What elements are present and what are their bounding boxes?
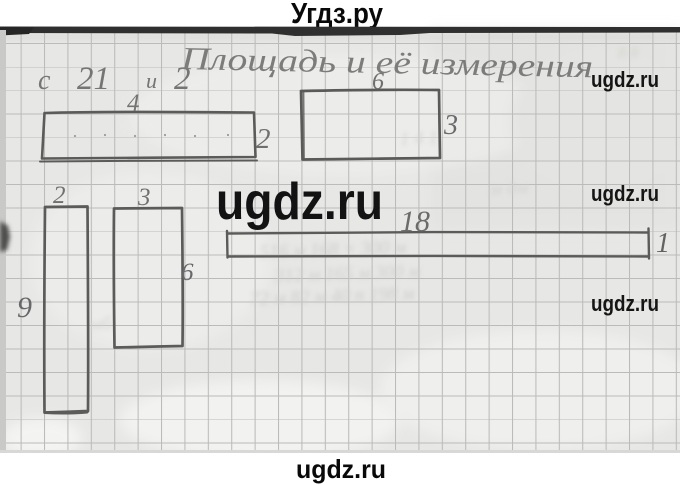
svg-text:1: 1 bbox=[656, 228, 670, 259]
svg-text:3: 3 bbox=[443, 110, 458, 141]
svg-text:6: 6 bbox=[181, 259, 194, 286]
svg-text:6: 6 bbox=[372, 69, 384, 95]
svg-text:8 8: 8 8 bbox=[618, 45, 638, 62]
svg-text:м дм: м дм bbox=[488, 177, 529, 200]
svg-text:2: 2 bbox=[256, 123, 271, 155]
svg-text:2: 2 bbox=[53, 182, 66, 209]
svg-text:ugdz.ru: ugdz.ru bbox=[591, 67, 659, 92]
svg-text:с: с bbox=[38, 65, 51, 96]
svg-text:9: 9 bbox=[17, 291, 32, 324]
svg-text:3: 3 bbox=[137, 184, 151, 211]
svg-text:Угдз.ру: Угдз.ру bbox=[291, 0, 383, 30]
svg-text:ugdz.ru: ugdz.ru bbox=[216, 173, 383, 231]
svg-text:4: 4 bbox=[127, 90, 140, 117]
svg-text:18: 18 bbox=[400, 205, 430, 238]
svg-text:и: и bbox=[146, 68, 157, 93]
svg-text:ugdz.ru: ugdz.ru bbox=[296, 454, 386, 484]
svg-text:ugdz.ru: ugdz.ru bbox=[591, 291, 659, 316]
svg-text:мб: мб bbox=[88, 313, 113, 335]
svg-text:1 4 1: 1 4 1 bbox=[399, 128, 438, 150]
svg-text:21: 21 bbox=[77, 61, 110, 97]
svg-text:ugdz.ru: ugdz.ru bbox=[591, 181, 659, 206]
